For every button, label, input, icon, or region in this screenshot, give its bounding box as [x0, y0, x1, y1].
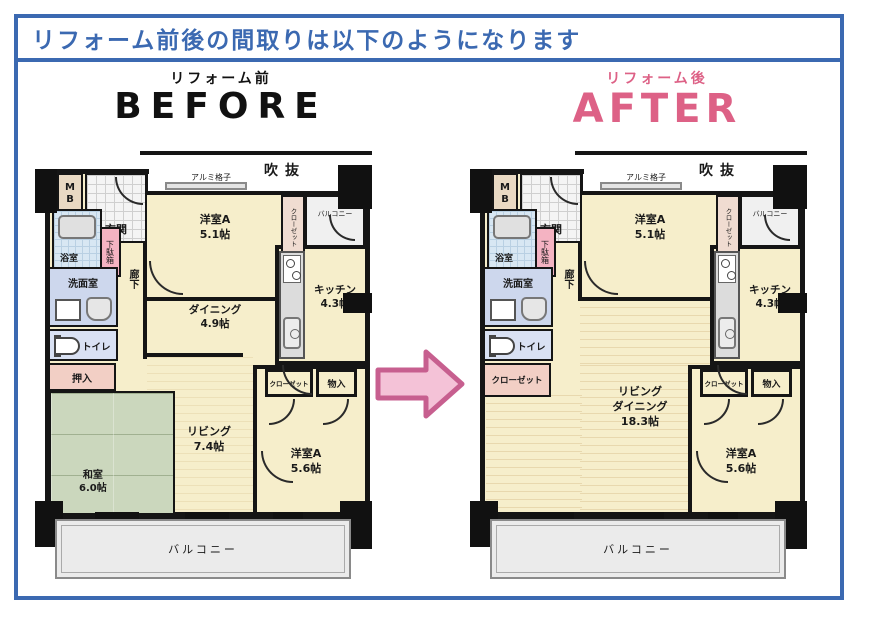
balcony: バルコニー: [490, 519, 786, 579]
basin-icon: [521, 297, 547, 321]
room-name: 洋室A: [200, 213, 231, 226]
closet-label: クローゼット: [491, 374, 542, 386]
after-header: リフォーム後 AFTER: [542, 68, 772, 130]
entry-closet: クローゼット: [483, 363, 551, 397]
closet-label: クローゼット: [723, 208, 733, 247]
pillar: [343, 293, 372, 313]
wall: [253, 365, 257, 515]
pillar: [773, 165, 807, 209]
room-name: ダイニング: [613, 400, 668, 413]
bathroom: 浴室: [487, 209, 537, 275]
page-title: リフォーム前後の間取りは以下のようになります: [18, 21, 581, 55]
after-caption: リフォーム後: [542, 68, 772, 88]
japanese-room-label: 和室 6.0帖: [79, 469, 107, 495]
washing-machine-icon: [55, 299, 81, 321]
pillar: [778, 293, 807, 313]
bathroom-label: 浴室: [60, 251, 78, 264]
toilet-label: トイレ: [517, 339, 546, 353]
closet-vertical: クローゼット: [716, 195, 740, 259]
before-after-arrow-icon: [374, 344, 466, 424]
pillar: [35, 169, 57, 213]
toilet-icon: [54, 337, 80, 355]
meter-box-label: MB: [500, 182, 511, 206]
washroom-label: 洗面室: [485, 275, 551, 290]
stove-icon: [718, 255, 736, 283]
sink-icon: [283, 317, 301, 349]
room-name: 和室: [83, 470, 103, 481]
balcony-label: バルコニー: [603, 541, 673, 557]
dining-label: ダイニング 4.9帖: [175, 303, 255, 331]
toilet-label: トイレ: [82, 339, 111, 353]
wall: [800, 191, 805, 519]
storage-label: 物入: [762, 377, 780, 390]
meter-box-label: MB: [65, 182, 76, 206]
washroom: 洗面室: [483, 267, 553, 327]
storage-label: 物入: [327, 377, 345, 390]
wall-segment: [530, 512, 574, 519]
room-name: リビング: [187, 425, 231, 438]
aluminum-lattice-bar: [600, 182, 682, 190]
toilet-icon: [489, 337, 515, 355]
room-name: 洋室A: [635, 213, 666, 226]
toilet-room: トイレ: [48, 329, 118, 361]
balcony-label: バルコニー: [168, 541, 238, 557]
washroom-label: 洗面室: [50, 275, 116, 290]
wall-segment: [95, 512, 139, 519]
room-size: 5.1帖: [200, 228, 231, 241]
room-size: 5.1帖: [635, 228, 666, 241]
room-size: 7.4帖: [194, 440, 225, 453]
wall: [365, 191, 370, 519]
ld-floor-texture: [486, 395, 582, 515]
room-size: 6.0帖: [79, 483, 107, 494]
basin-icon: [86, 297, 112, 321]
ld-floor-texture: [580, 299, 710, 365]
western-room-a1-label: 洋室A 5.1帖: [595, 213, 705, 243]
pillar: [470, 169, 492, 213]
closet-vertical: クローゼット: [281, 195, 305, 259]
pillar: [338, 165, 372, 209]
before-header: リフォーム前 BEFORE: [106, 68, 336, 126]
wall: [143, 301, 147, 359]
wall: [578, 297, 716, 301]
room-size: 5.6帖: [291, 462, 322, 475]
room-size: 4.9帖: [200, 318, 229, 330]
wall: [147, 353, 243, 357]
corridor-label: 廊下: [560, 269, 576, 313]
title-bar: リフォーム前後の間取りは以下のようになります: [18, 18, 840, 62]
wall-segment: [273, 512, 303, 519]
floorplan-before: 吹抜 アルミ格子 MB 玄関 下駄箱 浴室: [35, 151, 375, 587]
living-dining-label: リビング ダイニング 18.3帖: [588, 385, 692, 430]
corridor-text: 廊下: [560, 269, 575, 289]
room-name: ダイニング: [189, 304, 242, 316]
toilet-room: トイレ: [483, 329, 553, 361]
oshiire-label: 押入: [72, 370, 92, 385]
room-size: 5.6帖: [726, 462, 757, 475]
bathtub-icon: [493, 215, 531, 239]
japanese-room: 和室 6.0帖: [49, 391, 175, 515]
shoe-cabinet-label: 下駄箱: [105, 240, 116, 264]
before-caption: リフォーム前: [106, 68, 336, 88]
bathroom-label: 浴室: [495, 251, 513, 264]
wall: [143, 297, 281, 301]
corridor-text: 廊下: [125, 269, 140, 289]
washroom: 洗面室: [48, 267, 118, 327]
after-title: AFTER: [542, 88, 772, 130]
bathroom: 浴室: [52, 209, 102, 275]
room-name: 洋室A: [726, 447, 757, 460]
closet-label: クローゼット: [288, 208, 298, 247]
washing-machine-icon: [490, 299, 516, 321]
room-size: 18.3帖: [621, 415, 659, 428]
corridor-label: 廊下: [125, 269, 141, 313]
storage-room: 物入: [316, 369, 357, 397]
room-name: リビング: [618, 385, 662, 398]
wall-segment: [620, 512, 664, 519]
stove-icon: [283, 255, 301, 283]
content-area: リフォーム前 BEFORE リフォーム後 AFTER 吹抜 アルミ格子: [18, 62, 840, 596]
storage-room: 物入: [751, 369, 792, 397]
western-room-a1-label: 洋室A 5.1帖: [160, 213, 270, 243]
page-frame: リフォーム前後の間取りは以下のようになります リフォーム前 BEFORE リフォ…: [14, 14, 844, 600]
bathtub-icon: [58, 215, 96, 239]
oshiire-closet: 押入: [48, 363, 116, 391]
aluminum-lattice-bar: [165, 182, 247, 190]
living-label: リビング 7.4帖: [169, 425, 249, 455]
wall-segment: [185, 512, 229, 519]
floorplan-after: 吹抜 アルミ格子 MB 玄関 下駄箱 浴室 洗面室: [470, 151, 810, 587]
sink-icon: [718, 317, 736, 349]
balcony: バルコニー: [55, 519, 351, 579]
before-title: BEFORE: [106, 88, 336, 126]
shoe-cabinet-label: 下駄箱: [540, 240, 551, 264]
wall-segment: [708, 512, 738, 519]
room-name: 洋室A: [291, 447, 322, 460]
